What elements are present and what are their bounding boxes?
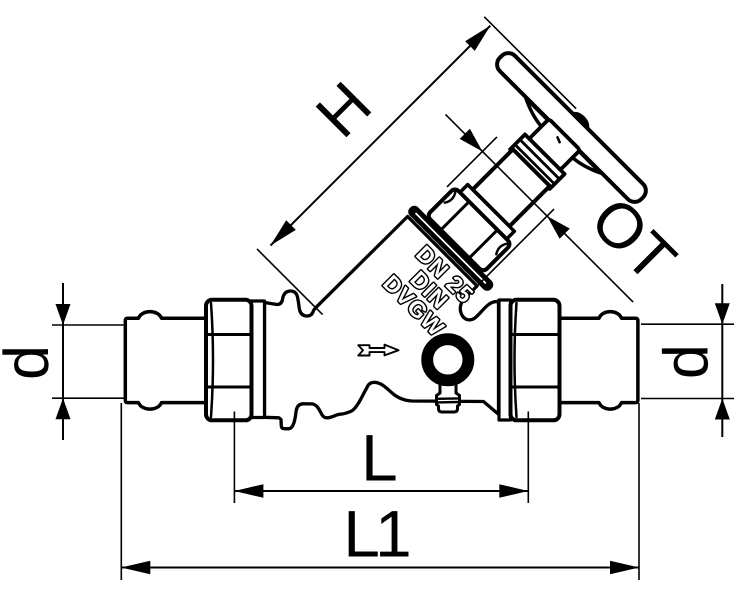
svg-text:L1: L1 — [343, 497, 409, 571]
svg-text:d: d — [651, 344, 721, 379]
svg-text:L: L — [361, 420, 398, 494]
svg-text:d: d — [0, 345, 62, 380]
